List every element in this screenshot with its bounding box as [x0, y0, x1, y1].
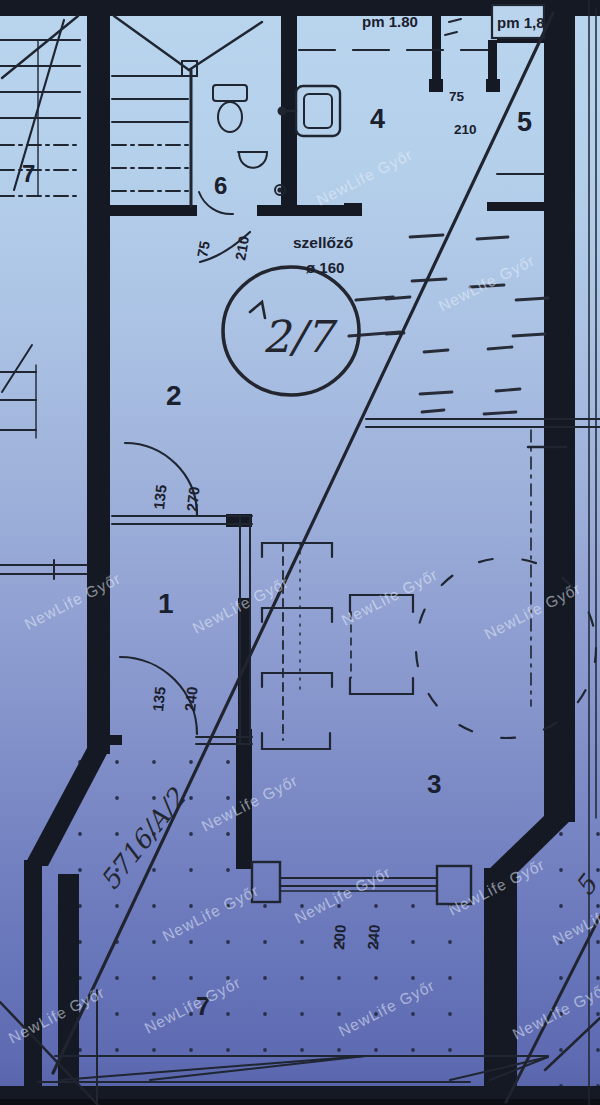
room5-number: 5 — [517, 107, 532, 137]
room1-number: 1 — [158, 588, 174, 619]
main-stair — [112, 16, 262, 206]
wall-left — [87, 12, 110, 754]
watermark-text: NewLife Győr — [314, 145, 416, 208]
room4-number: 4 — [370, 104, 385, 134]
unit-circle-mark: 2/7 — [223, 267, 359, 395]
dim-terrace-w: 200 — [330, 924, 349, 950]
sink-basin — [304, 94, 332, 128]
room-stair-top-number: 7 — [22, 160, 35, 187]
toilet-bowl — [218, 102, 242, 132]
wall-room1-bottom-stub — [110, 735, 122, 745]
room2-number: 2 — [166, 380, 182, 411]
room3-number: 3 — [427, 769, 441, 799]
left-neighbor-detail — [0, 345, 87, 579]
wall-terrace-left-outer — [24, 860, 42, 1105]
pm-left-label: pm 1.80 — [362, 13, 418, 30]
dim-terrace-h: 240 — [364, 924, 383, 950]
vent-label: szellőző — [293, 234, 353, 251]
sink-tap — [279, 108, 286, 115]
neighbor-stair — [0, 16, 80, 196]
dim-door45-h: 210 — [454, 122, 477, 137]
toilet-tank — [213, 85, 247, 101]
wall-room2-top-left — [110, 205, 197, 216]
dim-door1top-h: 270 — [183, 486, 203, 513]
wall-right — [544, 0, 575, 822]
wall-room2-top-right — [257, 205, 346, 216]
watermark-text: NewLife Győr — [436, 251, 538, 314]
watermark-text: NewLife Győr — [339, 565, 441, 628]
dim-door1top-w: 135 — [150, 484, 170, 511]
washbasin — [239, 152, 267, 168]
dim-door1bot-w: 135 — [149, 686, 169, 713]
wall-terrace-right — [484, 868, 517, 1105]
bathroom-fixtures — [199, 85, 285, 214]
floorplan-drawing: 2/7 pm 1.80 pm 1,8 75 210 7 6 4 5 szellő… — [0, 0, 600, 1105]
dim-door1bot-h: 240 — [181, 686, 201, 713]
vent-shaft — [344, 203, 362, 216]
floorplan-scan: 2/7 pm 1.80 pm 1,8 75 210 7 6 4 5 szellő… — [0, 0, 600, 1105]
dim-door2-h: 210 — [232, 235, 252, 262]
wall-bottom-edge — [0, 1099, 600, 1105]
wall-room5-left — [488, 40, 497, 92]
unit-mark-text: 2/7 — [262, 311, 338, 362]
room-bath-number: 6 — [214, 172, 227, 199]
dim-door2-w: 75 — [194, 240, 213, 259]
pm-right-label: pm 1,8 — [497, 14, 545, 31]
wall-room5-bottom — [487, 202, 545, 211]
door45-jamb-left — [429, 79, 443, 92]
wall-terrace-left-inner — [58, 874, 79, 1105]
vent-size-label: ø 160 — [306, 259, 344, 276]
dim-door45-w: 75 — [449, 89, 465, 104]
